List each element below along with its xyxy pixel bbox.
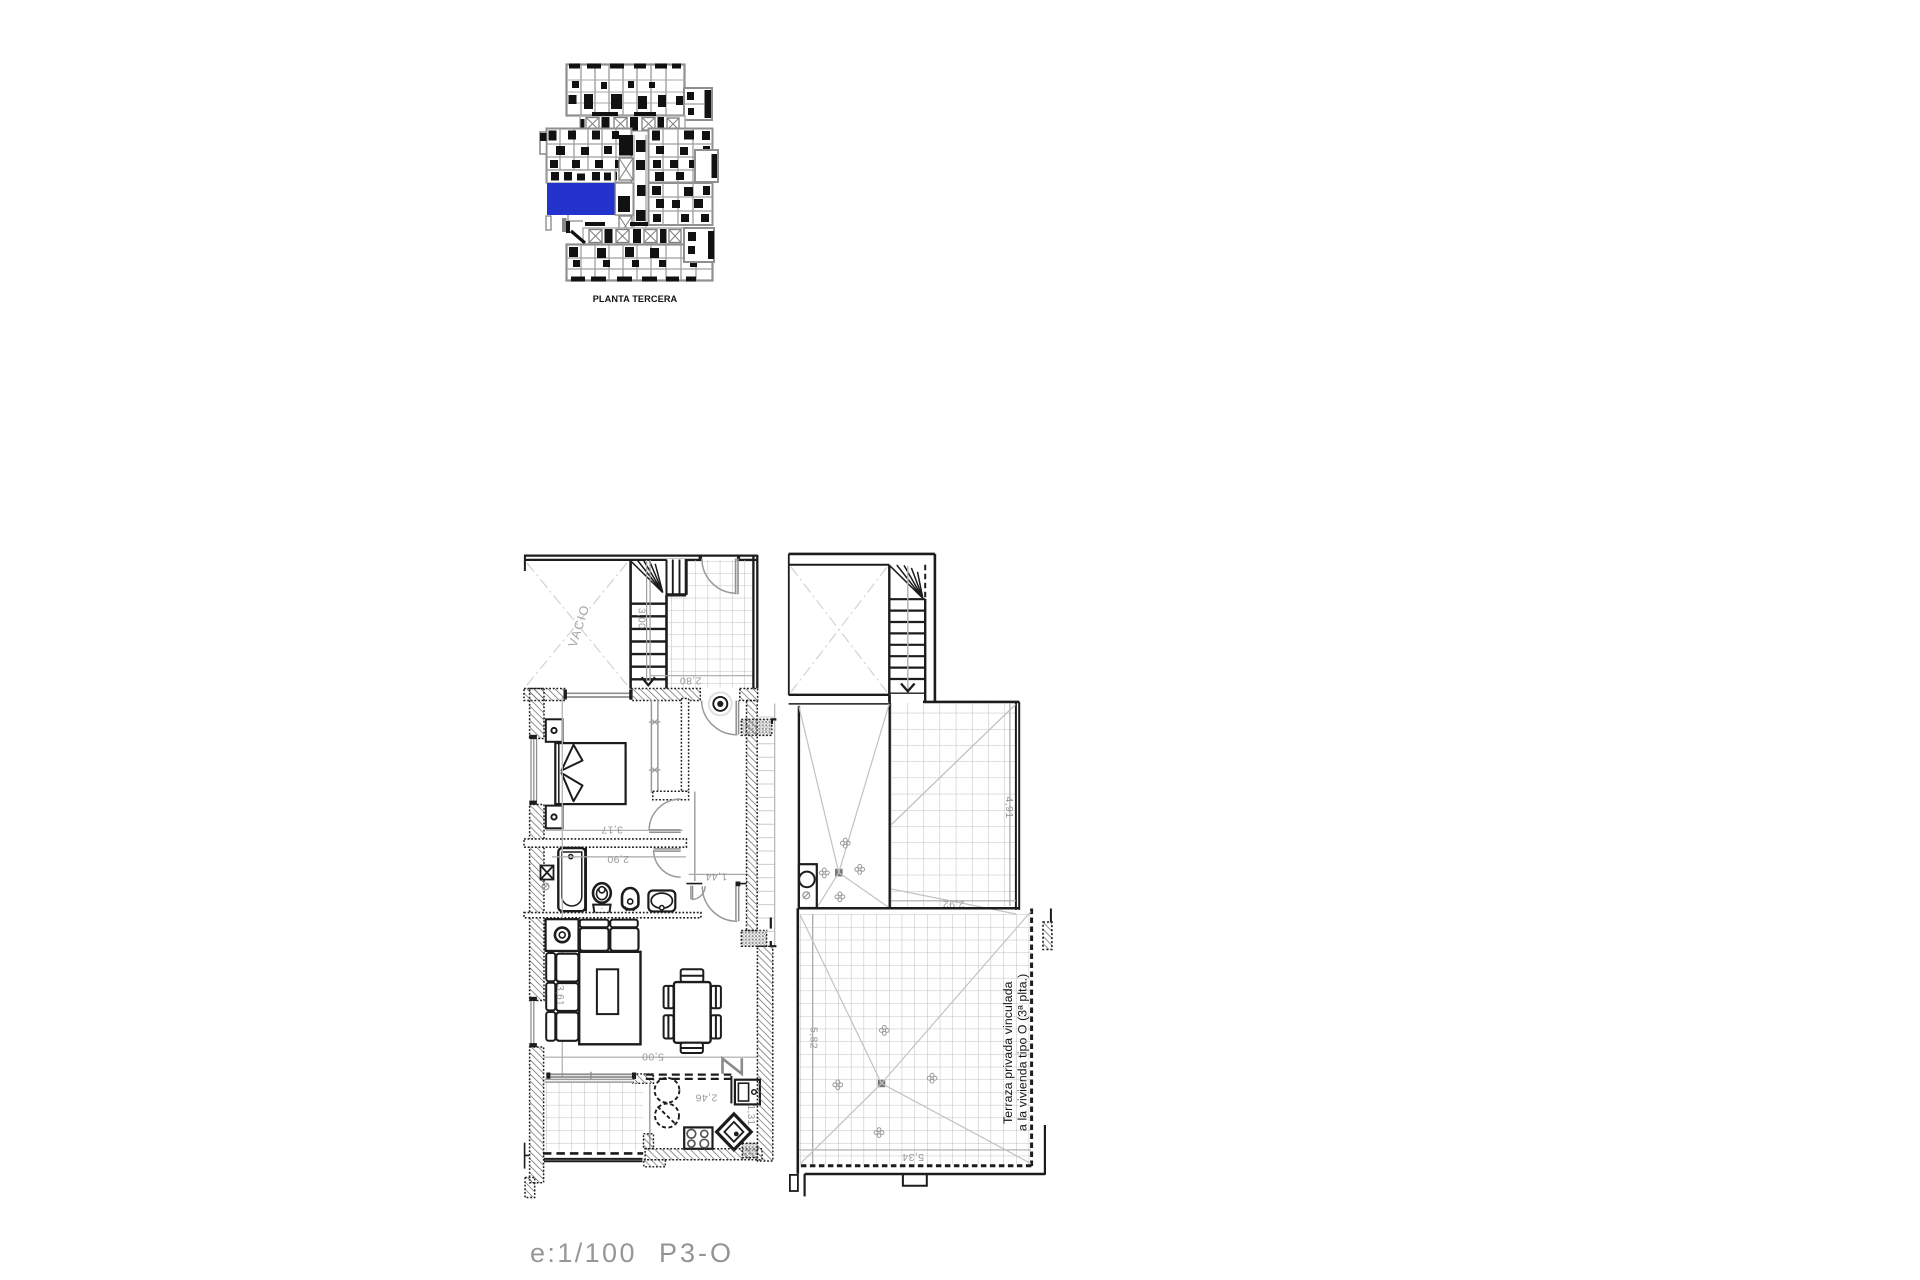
- svg-text:3,00: 3,00: [636, 608, 647, 629]
- svg-text:4,91: 4,91: [1003, 797, 1015, 819]
- svg-text:3,61: 3,61: [554, 985, 565, 1006]
- svg-text:3,17: 3,17: [601, 824, 623, 836]
- svg-text:2,80: 2,80: [679, 675, 701, 687]
- svg-text:1,31: 1,31: [745, 1105, 756, 1126]
- svg-text:5,82: 5,82: [808, 1027, 820, 1049]
- svg-text:Terraza privada vinculada: Terraza privada vinculada: [1001, 981, 1015, 1124]
- svg-text:PLANTA TERCERA: PLANTA TERCERA: [593, 294, 678, 304]
- svg-text:2,90: 2,90: [607, 853, 629, 865]
- svg-text:2,46: 2,46: [695, 1091, 717, 1103]
- svg-text:P3-O: P3-O: [659, 1238, 734, 1268]
- svg-text:a la vivienda tipo O (3ª plta.: a la vivienda tipo O (3ª plta.): [1016, 974, 1030, 1131]
- svg-text:5,34: 5,34: [902, 1151, 924, 1163]
- svg-text:1,44: 1,44: [705, 870, 727, 882]
- svg-text:5,00: 5,00: [642, 1050, 664, 1062]
- svg-text:e:1/100: e:1/100: [530, 1238, 637, 1268]
